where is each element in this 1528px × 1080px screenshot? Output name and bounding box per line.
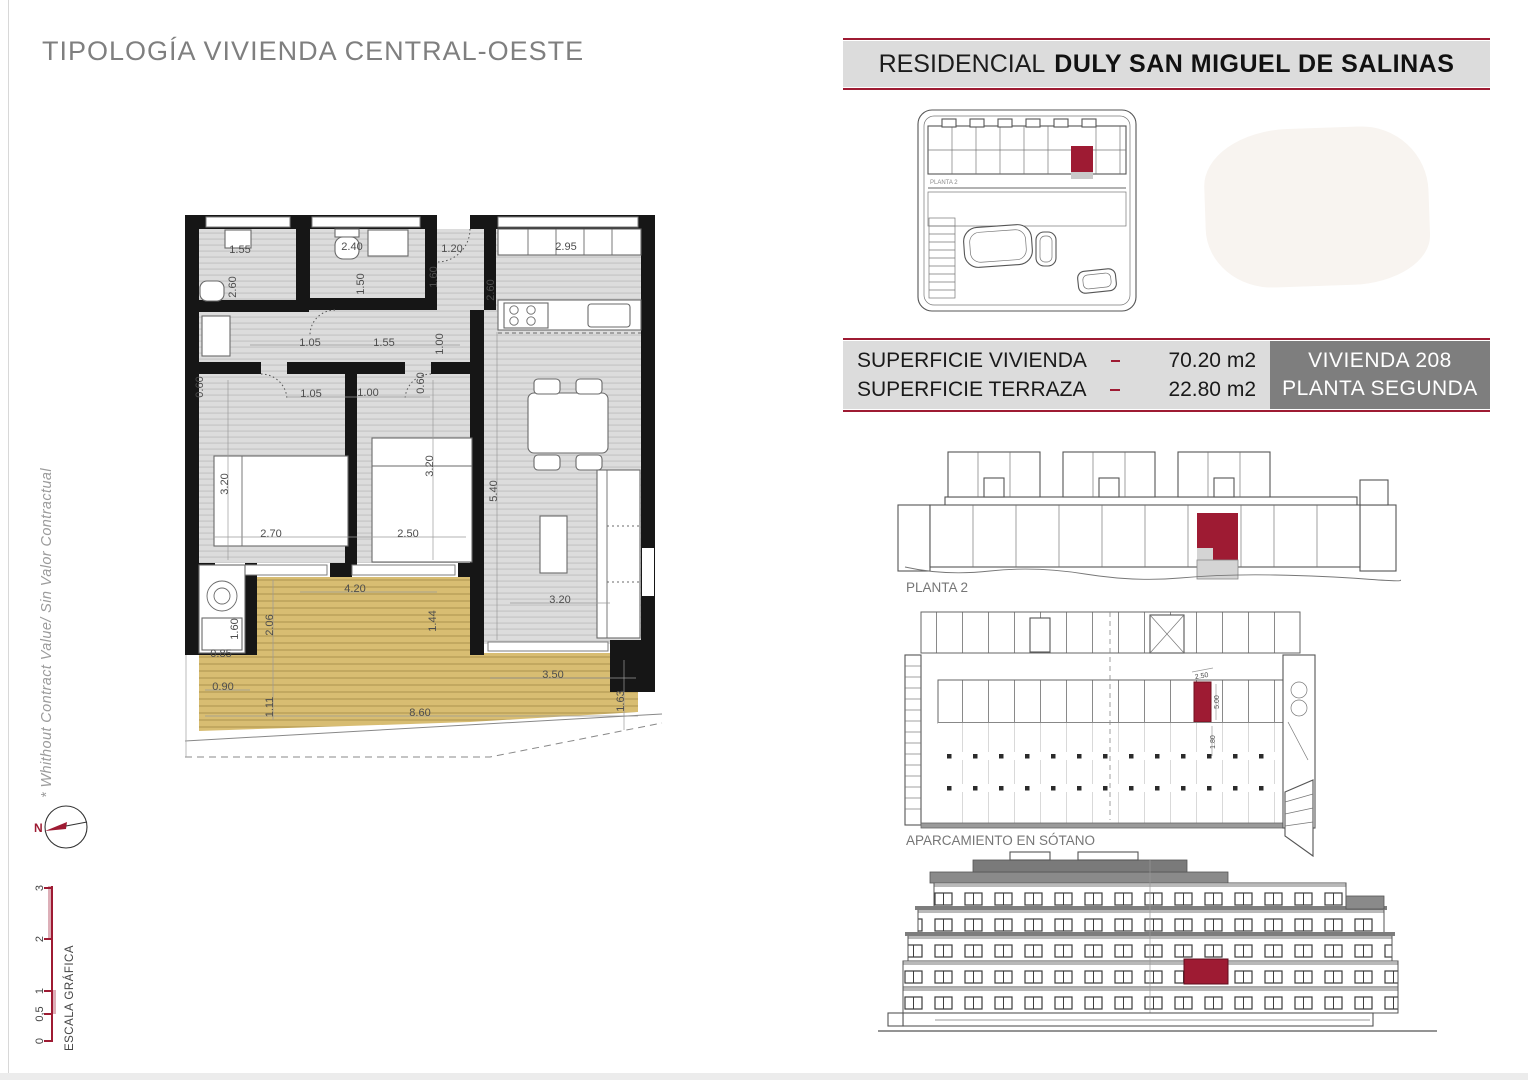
dimension-label: 2.95 [555, 241, 576, 253]
technical-drawings: 1.552.401.202.952.601.501.602.601.051.55… [0, 0, 1528, 1080]
roof-blocks [948, 452, 1270, 497]
header-rule-bottom [843, 88, 1490, 90]
column-row-2 [938, 784, 1283, 792]
project-header: RESIDENCIAL DULY SAN MIGUEL DE SALINAS [843, 38, 1490, 90]
dimension-label: 2.60 [227, 276, 239, 297]
compass-needle [45, 822, 67, 831]
dimension-label: 5.40 [488, 480, 500, 501]
dimension-label: 4.20 [344, 583, 365, 595]
scale-tick-label: 2 [34, 936, 46, 942]
highlighted-unit-site [1071, 146, 1093, 172]
scale-tick-label: 0 [34, 1038, 46, 1044]
surface-value: 22.80 m2 [1138, 378, 1256, 402]
highlighted-parking-space [1194, 682, 1211, 722]
lower-stalls [938, 723, 1283, 823]
scale-tick-label: 0,5 [34, 1006, 46, 1021]
dimension-label: 3.20 [424, 455, 436, 476]
dimension-label: 1.11 [264, 697, 276, 718]
sink [588, 304, 630, 327]
dimension-label: 1.05 [300, 388, 321, 400]
dash-line [1111, 360, 1120, 362]
dimension-label: 1.55 [373, 337, 394, 349]
scale-tick-label: 1 [34, 988, 46, 994]
contract-disclaimer: * Whithout Contract Value/ Sin Valor Con… [39, 458, 55, 808]
dimension-label: 1.63 [615, 690, 627, 711]
page-edge-bottom [0, 1073, 1528, 1080]
dimension-label: 1.00 [434, 333, 446, 354]
info-rule-bottom [843, 410, 1490, 412]
dimension-label: 0.60 [415, 372, 427, 393]
toilet-1 [200, 281, 224, 301]
scale-tick-label: 3 [34, 885, 46, 891]
dimension-label: 3.20 [219, 473, 231, 494]
floor-plan-level-2: PLANTA 2 [898, 452, 1401, 595]
dimension-label: 2.50 [397, 528, 418, 540]
surface-row-terraza: SUPERFICIE TERRAZA 22.80 m2 [857, 378, 1256, 402]
header-rule-top [843, 38, 1490, 40]
highlighted-unit-facade [1184, 959, 1228, 984]
unit-floor: PLANTA SEGUNDA [1282, 377, 1478, 401]
column-row-1 [938, 752, 1283, 760]
page-title: TIPOLOGÍA VIVIENDA CENTRAL-OESTE [42, 36, 584, 67]
dimension-label: 3.20 [549, 594, 570, 606]
dimension-label: 1.55 [229, 244, 250, 256]
parking-label: APARCAMIENTO EN SÓTANO [906, 833, 1095, 848]
floor-elevation-label: PLANTA 2 [906, 580, 968, 595]
dimension-label: 0.90 [212, 681, 233, 693]
unit-number: VIVIENDA 208 [1308, 349, 1452, 373]
elevator-core [1030, 618, 1050, 652]
dimension-label: 2.60 [485, 279, 497, 300]
shower [368, 230, 408, 256]
dimension-label: 2.40 [341, 241, 362, 253]
scale-bar: 3210,50 ESCALA GRÁFICA [34, 885, 76, 1051]
compass: N [34, 806, 87, 848]
header-prefix: RESIDENCIAL [879, 50, 1046, 79]
site-plan: PLANTA 2 [918, 110, 1136, 311]
surface-label: SUPERFICIE VIVIENDA [857, 349, 1087, 373]
info-rule-top [843, 338, 1490, 340]
surface-label: SUPERFICIE TERRAZA [857, 378, 1086, 402]
parking-plan: APARCAMIENTO EN SÓTANO 2.505.001.80 [905, 612, 1315, 856]
stall-row-middle [938, 680, 1283, 723]
ramp [1285, 780, 1313, 856]
dimension-label: 3.50 [542, 669, 563, 681]
dimension-label: 1.80 [1210, 735, 1217, 749]
dimension-label: 1.60 [229, 618, 241, 639]
dimension-label: 1.20 [441, 243, 462, 255]
dimension-label: 0.85 [210, 648, 231, 660]
scale-bar-label: ESCALA GRÁFICA [63, 945, 76, 1051]
dimension-label: 0.60 [194, 376, 206, 397]
dimension-label: 5.00 [1214, 695, 1221, 709]
pool-kids [1077, 268, 1117, 294]
dimension-label: 1.44 [427, 610, 439, 631]
hob [504, 303, 548, 328]
washbasin-1 [202, 316, 230, 356]
dimension-label: 1.05 [299, 337, 320, 349]
site-plan-label: PLANTA 2 [930, 180, 958, 186]
dimension-label: 8.60 [409, 707, 430, 719]
dining-table [528, 393, 608, 453]
dimension-label: 2.06 [264, 614, 276, 635]
header-project-name: DULY SAN MIGUEL DE SALINAS [1054, 50, 1454, 79]
pool-small [1036, 232, 1056, 266]
surface-list: SUPERFICIE VIVIENDA 70.20 m2 SUPERFICIE … [843, 341, 1270, 409]
stall-row-top [921, 612, 1300, 653]
sofa [597, 470, 640, 638]
building-elevation [878, 852, 1437, 1031]
surface-row-vivienda: SUPERFICIE VIVIENDA 70.20 m2 [857, 349, 1256, 373]
side-stalls [905, 655, 921, 825]
dimension-label: 1.00 [357, 387, 378, 399]
unit-id-box: VIVIENDA 208 PLANTA SEGUNDA [1270, 341, 1490, 409]
apartment-floor-plan: 1.552.401.202.952.601.501.602.601.051.55… [185, 215, 662, 757]
dimension-label: 1.60 [428, 266, 440, 287]
coffee-table [540, 516, 567, 573]
dimension-label: 1.50 [355, 273, 367, 294]
surface-value: 70.20 m2 [1138, 349, 1256, 373]
dash-line [1110, 389, 1120, 391]
surface-info-panel: SUPERFICIE VIVIENDA 70.20 m2 SUPERFICIE … [843, 338, 1490, 412]
page-edge-left [8, 0, 9, 1080]
dimension-label: 2.70 [260, 528, 281, 540]
compass-north-label: N [34, 821, 43, 835]
pool-main [963, 224, 1034, 269]
bed-2 [372, 438, 472, 562]
